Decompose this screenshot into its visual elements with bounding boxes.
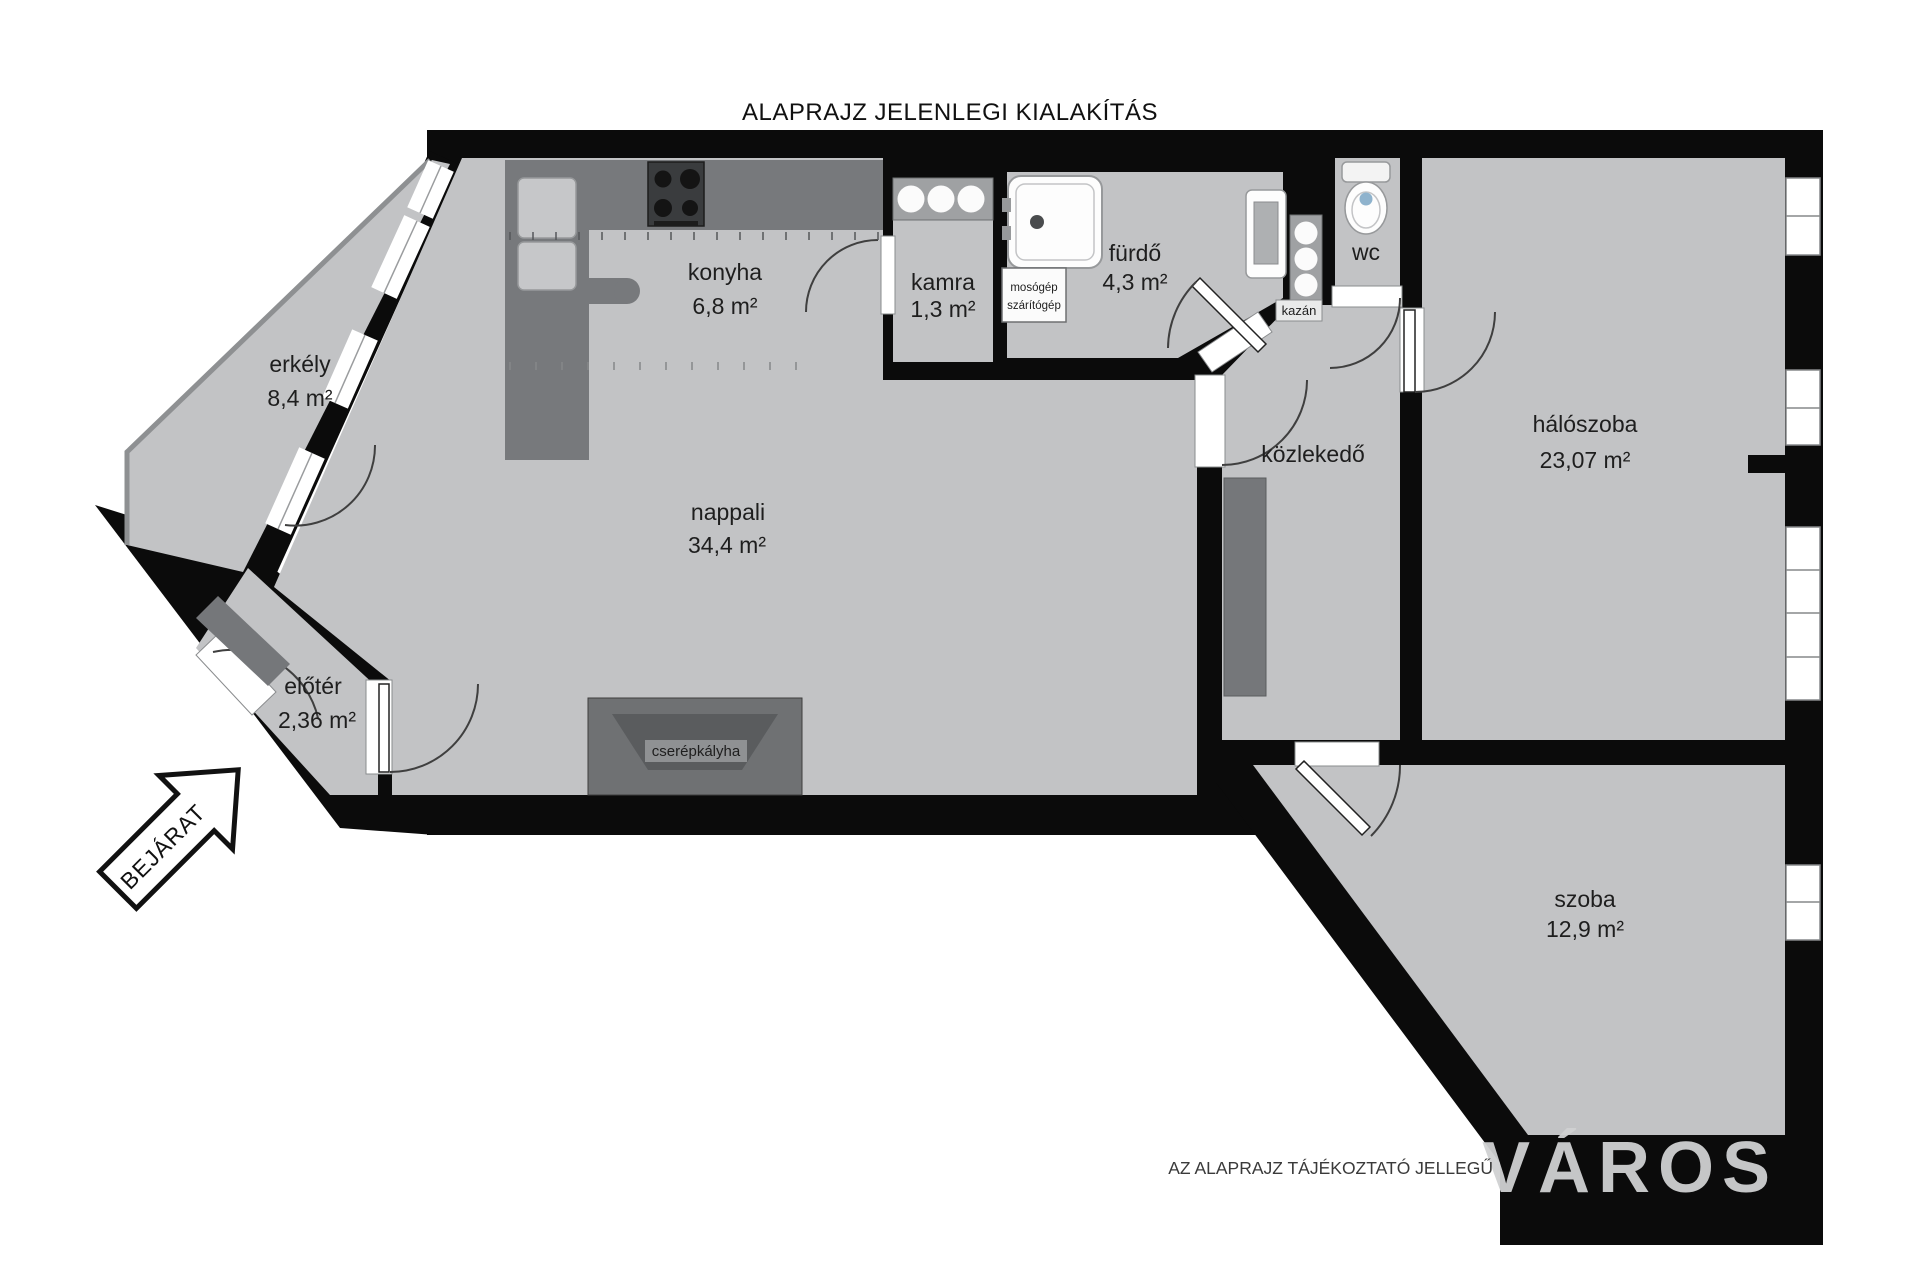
- window-szoba: [1786, 865, 1820, 940]
- washer-dryer-box: mosógép szárítógép: [1002, 268, 1066, 322]
- doorway-nappali-kozlekedo: [1195, 375, 1225, 467]
- room-label-furdo: fürdő: [1109, 240, 1161, 266]
- watermark: VÁROS: [1482, 1128, 1778, 1208]
- room-label-eloter: előtér: [284, 673, 342, 699]
- washer-label-line2: szárítógép: [1007, 300, 1061, 312]
- toilet-icon: [1342, 162, 1390, 234]
- washbasin-icon: [1246, 190, 1286, 278]
- window-haloszoba-3: [1786, 527, 1820, 700]
- disclaimer-note: AZ ALAPRAJZ TÁJÉKOZTATÓ JELLEGŰ: [1168, 1157, 1493, 1178]
- kitchen-bar-cap: [614, 278, 640, 304]
- fridge-icon: [518, 178, 576, 290]
- washer-label-line1: mosógép: [1010, 282, 1057, 294]
- room-label-kozlekedo: közlekedő: [1261, 441, 1365, 467]
- boiler-label: kazán: [1282, 303, 1317, 318]
- doorway-wc: [1332, 286, 1402, 307]
- room-area-haloszoba: 23,07 m²: [1540, 447, 1631, 473]
- room-area-furdo: 4,3 m²: [1102, 269, 1168, 295]
- bathtub-icon: [1002, 176, 1102, 268]
- floor-plan-page: mosógép szárítógép kazán cserépkályha: [0, 0, 1915, 1280]
- room-area-nappali: 34,4 m²: [688, 532, 766, 558]
- room-label-konyha: konyha: [688, 259, 762, 285]
- room-label-szoba: szoba: [1554, 886, 1616, 912]
- pantry-shelf-icon: [893, 178, 993, 220]
- window-haloszoba-1: [1786, 178, 1820, 255]
- room-label-nappali: nappali: [691, 499, 765, 525]
- tile-stove-label: cserépkályha: [652, 743, 741, 760]
- tile-stove: cserépkályha: [588, 698, 802, 795]
- doorway-kamra: [881, 236, 895, 314]
- entrance-arrow-icon: BEJÁRAT: [81, 733, 275, 927]
- stove-icon: [648, 162, 704, 226]
- wall-pier-stub: [1748, 455, 1786, 473]
- floor-szoba: [1253, 765, 1785, 1135]
- room-label-erkely: erkély: [269, 351, 331, 377]
- window-haloszoba-2: [1786, 370, 1820, 445]
- hall-wardrobe: [1224, 478, 1266, 696]
- doorway-szoba: [1295, 742, 1379, 766]
- room-area-kamra: 1,3 m²: [910, 296, 976, 322]
- floor-plan-svg: mosógép szárítógép kazán cserépkályha: [0, 0, 1915, 1280]
- room-area-erkely: 8,4 m²: [267, 385, 333, 411]
- room-label-haloszoba: hálószoba: [1533, 411, 1638, 437]
- room-area-eloter: 2,36 m²: [278, 707, 356, 733]
- room-label-wc: wc: [1351, 239, 1380, 265]
- room-label-kamra: kamra: [911, 269, 975, 295]
- room-area-konyha: 6,8 m²: [692, 293, 758, 319]
- room-area-szoba: 12,9 m²: [1546, 916, 1624, 942]
- page-title: ALAPRAJZ JELENLEGI KIALAKÍTÁS: [742, 99, 1158, 126]
